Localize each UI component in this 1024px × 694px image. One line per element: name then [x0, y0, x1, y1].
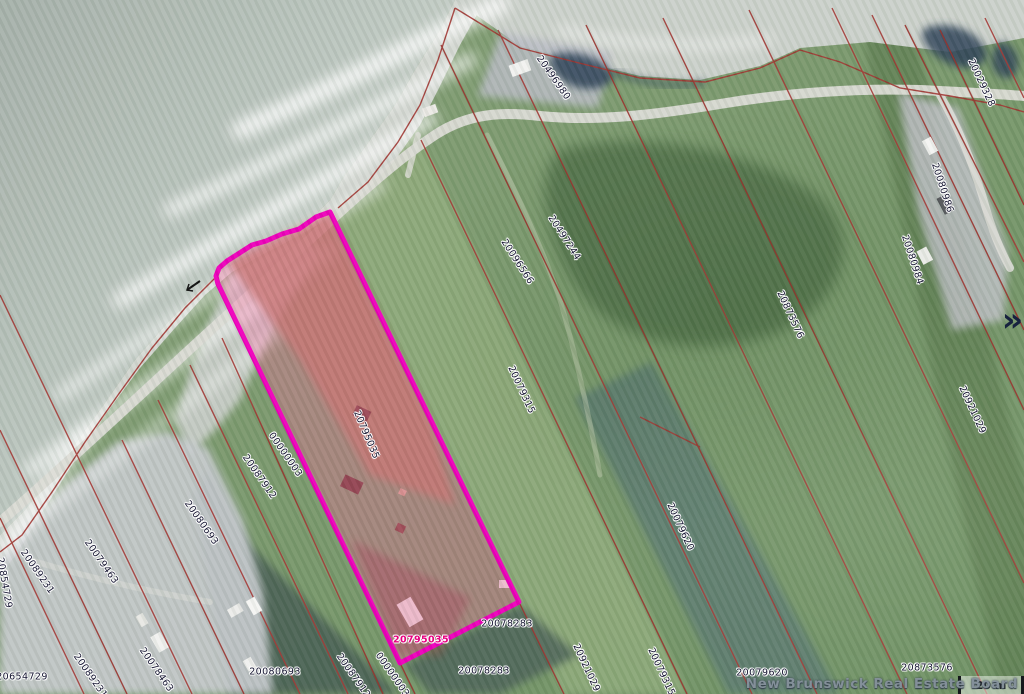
parcel-label: 20795035	[393, 635, 449, 645]
parcel-label: 20089231	[71, 652, 108, 694]
parcel-label: 20079315	[646, 647, 676, 694]
map-canvas[interactable]: 2049698020029328200809862049724420096566…	[0, 0, 1024, 694]
parcel-label: 20080693	[182, 499, 219, 547]
parcel-label: 20087912	[334, 652, 371, 694]
parcel-label: 20078283	[458, 666, 510, 676]
parcel-label: 20921029	[957, 385, 987, 436]
parcel-label: 20079620	[665, 502, 695, 553]
parcel-label: 20079463	[82, 538, 119, 586]
parcel-label: 20089231	[18, 548, 55, 596]
parcel-label: 20078463	[137, 646, 174, 694]
parcel-label: 20873576	[901, 663, 953, 673]
watermark: New Brunswick Real Estate Board	[746, 676, 1018, 692]
parcel-label: 20873576	[775, 290, 805, 341]
parcel-label: 00000003	[373, 651, 410, 694]
expand-panel-icon[interactable]: »	[1001, 300, 1024, 344]
parcel-label: 20921029	[571, 643, 601, 694]
parcel-label: 20079315	[506, 365, 536, 416]
parcel-label: 20080693	[249, 667, 301, 677]
parcel-label: 20087912	[240, 453, 277, 501]
parcel-label: 20029328	[966, 58, 996, 109]
parcel-label: 20096566	[499, 238, 535, 286]
parcel-label: 20795035	[352, 409, 381, 460]
parcel-label: 20080986	[930, 162, 955, 214]
parcel-label: 20080984	[900, 234, 925, 286]
parcel-labels-layer: 2049698020029328200809862049724420096566…	[0, 0, 1024, 694]
parcel-label: 20496980	[534, 54, 571, 102]
parcel-label: 20854729	[0, 557, 13, 609]
parcel-label: 20497244	[546, 214, 582, 262]
parcel-label: 20654729	[0, 672, 48, 682]
parcel-label: 20078283	[481, 619, 533, 629]
parcel-label: 00000003	[266, 431, 303, 479]
